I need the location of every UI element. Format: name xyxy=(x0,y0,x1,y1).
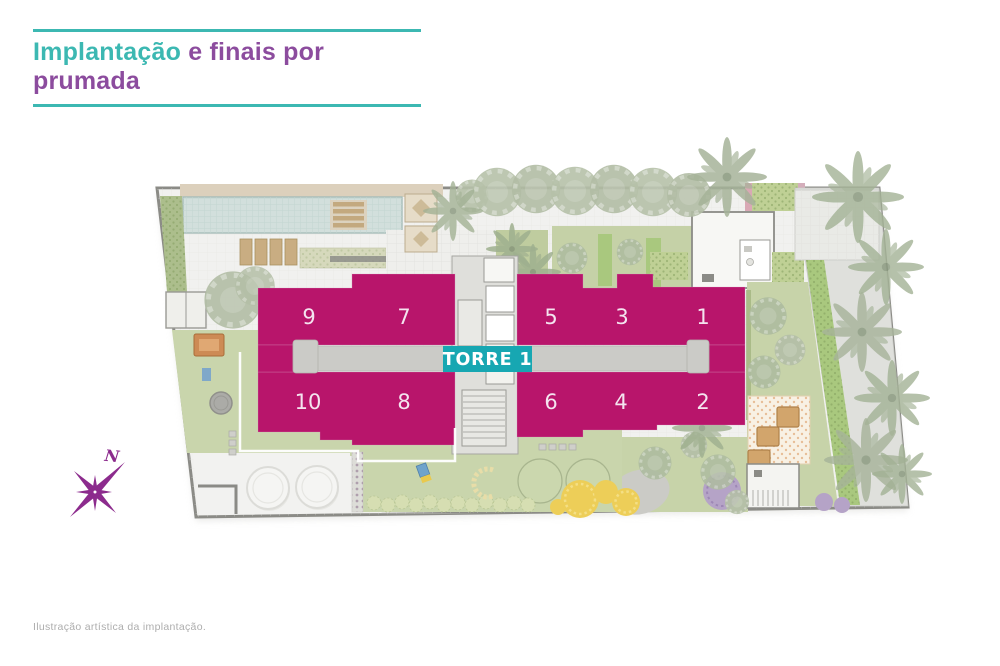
sink xyxy=(744,246,752,252)
tree-icon xyxy=(749,297,786,334)
tree-icon xyxy=(617,239,643,265)
corridor-west-cap xyxy=(293,340,318,373)
elevator xyxy=(486,286,514,312)
unit-number-10: 10 xyxy=(295,390,322,414)
tree-icon xyxy=(639,447,672,480)
corridor-east-cap xyxy=(687,340,709,373)
unit-number-5: 5 xyxy=(544,305,557,329)
pool-deck-strip xyxy=(180,184,443,197)
planting-strip xyxy=(598,234,612,286)
toilet xyxy=(747,259,754,266)
tree-icon xyxy=(700,454,735,489)
garden-bed-texture xyxy=(650,252,688,280)
stairs xyxy=(462,390,506,446)
tree-row xyxy=(456,165,712,217)
entry-fixture xyxy=(754,470,762,477)
unit-number-9: 9 xyxy=(302,305,315,329)
tree-icon xyxy=(775,335,806,366)
elevator xyxy=(486,315,514,341)
unit-number-1: 1 xyxy=(696,305,709,329)
unit-number-6: 6 xyxy=(544,390,557,414)
disclaimer-caption: Ilustração artística da implantação. xyxy=(33,621,206,633)
north-label: N xyxy=(103,446,122,467)
unit-block-east-link xyxy=(708,345,745,372)
unit-block-west-link xyxy=(258,345,296,372)
doorway xyxy=(702,274,714,282)
page: Implantação e finais por prumada xyxy=(0,0,1000,666)
unit-number-2: 2 xyxy=(696,390,709,414)
trampoline xyxy=(210,392,232,414)
palm-tree-icon xyxy=(872,444,932,504)
tree-icon xyxy=(725,490,749,514)
unit-number-7: 7 xyxy=(397,305,410,329)
palm-tree-icon xyxy=(812,151,904,243)
tower-label-text: TORRE 1 xyxy=(443,350,533,370)
unit-number-3: 3 xyxy=(615,305,628,329)
tree-icon xyxy=(748,356,781,389)
site-plan-illustration: TORRE 1 9 7 5 3 1 10 8 6 4 2 xyxy=(0,0,1000,666)
palm-tree-icon xyxy=(687,137,767,217)
unit-number-4: 4 xyxy=(614,390,627,414)
compass-star-icon xyxy=(70,462,125,517)
garden-bed-texture xyxy=(752,183,798,211)
unit-number-8: 8 xyxy=(397,390,410,414)
palm-tree-icon xyxy=(848,229,924,305)
tree-icon xyxy=(557,243,588,274)
pool-tiles xyxy=(183,197,402,233)
palm-tree-icon xyxy=(423,181,483,241)
compass-rose: N xyxy=(70,446,125,517)
tower-label: TORRE 1 xyxy=(443,346,533,372)
palm-tree-icon xyxy=(822,292,902,372)
